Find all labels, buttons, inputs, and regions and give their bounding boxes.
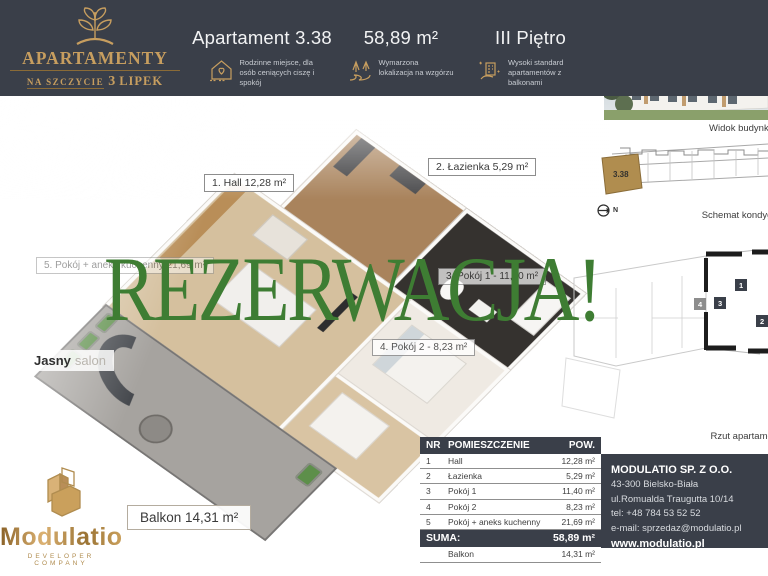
hand-building-icon — [477, 58, 502, 83]
email: e-mail: sprzedaz@modulatio.pl — [611, 522, 768, 537]
north-indicator: N — [596, 203, 618, 218]
north-compass-icon — [596, 203, 611, 218]
schematic-unit-number: 3.38 — [613, 170, 629, 179]
header-main: Apartament 3.38 Rodzinne miejsce, dla os… — [183, 0, 600, 96]
label-jasny-salon: Jasnysalon — [26, 350, 114, 371]
brand-title: APARTAMENTY — [10, 48, 180, 71]
developer-logo: Modulatio DEVELOPER COMPANY — [0, 466, 122, 567]
brand-lockup: APARTAMENTY NA SZCZYCIE 3 LIPEK — [10, 6, 180, 90]
feature-standard: Wysoki standard apartamentów z balkonami — [477, 58, 584, 87]
feature-location: Wymarzona lokalizacja na wzgórzu — [348, 58, 455, 83]
contact-box: MODULATIO SP. Z O.O. 43-300 Bielsko-Biał… — [600, 454, 768, 548]
address-line-1: 43-300 Bielsko-Biała — [611, 478, 768, 493]
feature-location-text: Wymarzona lokalizacja na wzgórzu — [379, 58, 455, 78]
developer-tagline: DEVELOPER COMPANY — [0, 553, 122, 567]
hillside-trees-icon — [348, 58, 373, 83]
north-label: N — [613, 207, 618, 214]
caption-rzut-apartamentu: Rzut apartamentu — [710, 431, 768, 442]
brand-subtitle: NA SZCZYCIE 3 LIPEK — [10, 72, 180, 90]
svg-text:1: 1 — [739, 281, 743, 290]
table-row: 1Hall12,28 m² — [420, 454, 601, 469]
table-balkon-row: Balkon14,31 m² — [420, 547, 601, 563]
tree-leaves-icon — [67, 6, 123, 48]
label-pokoj-2: 4. Pokój 2 - 8,23 m² — [372, 339, 475, 356]
svg-text:3: 3 — [718, 299, 722, 308]
apartment-area: 58,89 m² — [364, 27, 439, 49]
company-name: MODULATIO SP. Z O.O. — [611, 462, 768, 478]
label-lazienka: 2. Łazienka 5,29 m² — [428, 158, 536, 176]
label-balkon: Balkon 14,31 m² — [127, 505, 251, 530]
feature-family-text: Rodzinne miejsce, dla osób ceniących cis… — [240, 58, 316, 87]
address-line-2: ul.Romualda Traugutta 10/14 — [611, 493, 768, 508]
table-row: 5Pokój + aneks kuchenny21,69 m² — [420, 515, 601, 530]
caption-schemat-kondygnacji: Schemat kondygnacji — [702, 210, 768, 221]
caption-widok-budynku: Widok budynku — [709, 123, 768, 134]
table-header-row: NR POMIESZCZENIE POW. — [420, 437, 601, 454]
table-row: 4Pokój 28,23 m² — [420, 500, 601, 515]
website: www.modulatio.pl — [611, 536, 768, 552]
feature-family: Rodzinne miejsce, dla osób ceniących cis… — [209, 58, 316, 87]
apartment-title: Apartament 3.38 — [192, 27, 332, 49]
table-suma-row: SUMA:58,89 m² — [420, 530, 601, 547]
developer-wordmark: Modulatio — [0, 523, 122, 552]
table-row: 3Pokój 111,40 m² — [420, 484, 601, 499]
building-blocks-icon — [34, 466, 88, 518]
feature-standard-text: Wysoki standard apartamentów z balkonami — [508, 58, 584, 87]
header-bar: APARTAMENTY NA SZCZYCIE 3 LIPEK Apartame… — [0, 0, 768, 96]
apartment-floor: III Piętro — [495, 27, 566, 49]
rooms-table: NR POMIESZCZENIE POW. 1Hall12,28 m² 2Łaz… — [420, 437, 601, 563]
floor-schematic: 3.38 — [596, 136, 768, 202]
label-hall: 1. Hall 12,28 m² — [204, 174, 294, 192]
flyer-canvas: 1. Hall 12,28 m² 2. Łazienka 5,29 m² 5. … — [0, 0, 768, 576]
svg-text:2: 2 — [760, 317, 764, 326]
phone: tel: +48 784 53 52 52 — [611, 507, 768, 522]
family-house-heart-icon — [209, 58, 234, 83]
reservation-overlay-text: REZERWACJA! — [104, 243, 600, 335]
table-row: 2Łazienka5,29 m² — [420, 469, 601, 484]
